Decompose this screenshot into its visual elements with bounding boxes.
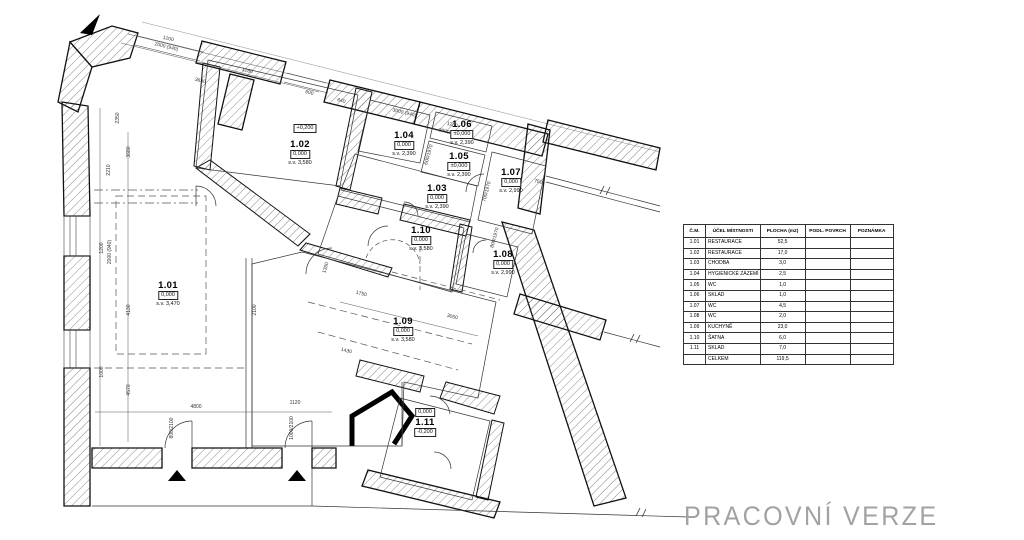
table-cell: WC — [706, 312, 761, 323]
table-cell — [805, 333, 850, 344]
drawing-sheet: 12002000 (940)363012806006403000 (940)12… — [0, 0, 1024, 540]
table-row: 1.11SKLAD7,0 — [684, 343, 894, 354]
plan-geometry — [546, 182, 660, 212]
table-cell: 23,0 — [760, 322, 805, 333]
table-row: 1.05WC1,0 — [684, 280, 894, 291]
table-cell — [850, 248, 893, 259]
plan-geometry — [64, 256, 90, 330]
dimension-label: 1750 — [355, 290, 367, 299]
plan-geometry — [318, 332, 458, 370]
plan-geometry — [64, 216, 90, 256]
dimension-label: 4800 — [190, 404, 201, 410]
table-cell: KUCHYNĚ — [706, 322, 761, 333]
table-cell: 52,5 — [760, 238, 805, 249]
dimension-label: 3680 — [126, 146, 132, 157]
dimension-label: 1000/2100 — [289, 416, 295, 440]
plan-geometry — [476, 420, 504, 500]
dimension-label: 1350 — [322, 261, 331, 274]
plan-geometry — [196, 160, 310, 246]
plan-geometry — [546, 176, 660, 206]
column-header: Č.M. — [684, 225, 706, 238]
table-cell: 1.04 — [684, 269, 706, 280]
table-cell — [805, 248, 850, 259]
table-cell: WC — [706, 301, 761, 312]
table-cell — [805, 322, 850, 333]
dimension-label: 2000 (940) — [107, 240, 113, 265]
plan-geometry — [366, 240, 420, 264]
plan-geometry — [543, 120, 660, 170]
table-cell: 1.05 — [684, 280, 706, 291]
column-header: ÚČEL MÍSTNOSTI — [706, 225, 761, 238]
room-schedule-table: Č.M.ÚČEL MÍSTNOSTIPLOCHA (m2)PODL. POVRC… — [683, 224, 894, 365]
plan-geometry — [502, 222, 626, 506]
plan-geometry — [64, 368, 90, 506]
table-cell — [805, 269, 850, 280]
table-cell: 119,5 — [760, 354, 805, 365]
dimension-label: 600/1970 — [423, 144, 434, 166]
plan-geometry — [92, 448, 162, 468]
dimension-label: 600 — [304, 89, 314, 97]
dimension-label: 3050 — [446, 313, 458, 322]
plan-geometry — [62, 102, 90, 216]
plan-geometry — [473, 240, 486, 253]
plan-geometry — [218, 74, 254, 130]
table-row: 1.08WC2,0 — [684, 312, 894, 323]
table-row: 1.09KUCHYNĚ23,0 — [684, 322, 894, 333]
table-cell: SKLAD — [706, 343, 761, 354]
plan-geometry — [368, 226, 388, 246]
dimension-label: 800/1970 — [489, 227, 500, 249]
dimension-label: 1200 — [162, 35, 174, 44]
plan-geometry — [116, 196, 206, 354]
table-cell: 4,5 — [760, 301, 805, 312]
table-row: 1.07WC4,5 — [684, 301, 894, 312]
table-cell — [850, 269, 893, 280]
dimension-label: 1430 — [340, 347, 352, 356]
table-body: 1.01RESTAURACE52,51.02RESTAURACE17,01.03… — [684, 238, 894, 365]
table-cell: 3,0 — [760, 259, 805, 270]
dimension-label: 800/2100 — [169, 417, 175, 438]
table-header-row: Č.M.ÚČEL MÍSTNOSTIPLOCHA (m2)PODL. POVRC… — [684, 225, 894, 238]
dimension-label: 2100 — [252, 304, 258, 315]
status-text: PRACOVNÍ VERZE — [684, 501, 938, 532]
table-cell: 1.08 — [684, 312, 706, 323]
table-cell: 1.10 — [684, 333, 706, 344]
plan-geometry — [604, 332, 660, 347]
table-cell: ŠATNA — [706, 333, 761, 344]
plan-geometry — [64, 330, 90, 368]
table-cell: 7,0 — [760, 343, 805, 354]
dimension-label: 1200 — [99, 242, 105, 253]
dimension-label: 1000 — [99, 366, 105, 377]
table-cell: CELKEM — [706, 354, 761, 365]
table-cell — [805, 290, 850, 301]
table-cell: 1,0 — [760, 290, 805, 301]
table-cell: 1.09 — [684, 322, 706, 333]
table-row: 1.10ŠATNA6,0 — [684, 333, 894, 344]
table-cell: 2,0 — [760, 312, 805, 323]
table-cell: RESTAURACE — [706, 238, 761, 249]
table-cell — [850, 290, 893, 301]
plan-geometry — [312, 506, 688, 517]
table-header: Č.M.ÚČEL MÍSTNOSTIPLOCHA (m2)PODL. POVRC… — [684, 225, 894, 238]
level-box: +0,200 — [294, 124, 317, 133]
table-cell: HYGIENICKÉ ZÁZEMÍ — [706, 269, 761, 280]
table-cell: 1.03 — [684, 259, 706, 270]
table-cell — [805, 354, 850, 365]
table-cell — [850, 259, 893, 270]
dimension-label: 1120 — [290, 400, 301, 406]
dimension-label: 2350 — [115, 112, 121, 123]
plan-geometry — [434, 452, 451, 469]
table-cell: WC — [706, 280, 761, 291]
table-cell: RESTAURACE — [706, 248, 761, 259]
table-cell — [850, 354, 893, 365]
dimension-label: 4130 — [126, 304, 132, 315]
dimension-labels: 12002000 (940)363012806006403000 (940)12… — [99, 35, 543, 440]
plan-geometry — [318, 196, 464, 292]
table-cell — [850, 322, 893, 333]
plan-geometry — [466, 174, 484, 192]
dimension-label: 3630 — [194, 77, 206, 86]
table-cell — [850, 312, 893, 323]
table-row: 1.04HYGIENICKÉ ZÁZEMÍ2,5 — [684, 269, 894, 280]
table-row: 1.06SKLAD1,0 — [684, 290, 894, 301]
entrance-arrow-icon — [288, 470, 306, 481]
table-cell: 17,0 — [760, 248, 805, 259]
plan-geometry — [356, 360, 424, 392]
entrance-arrow-icon — [168, 470, 186, 481]
table-cell — [684, 354, 706, 365]
table-cell: 1,0 — [760, 280, 805, 291]
plan-geometry — [312, 448, 336, 468]
table-cell — [805, 301, 850, 312]
table-cell — [850, 333, 893, 344]
table-cell: CHODBA — [706, 259, 761, 270]
plan-geometry — [392, 272, 500, 300]
plan-geometry — [308, 302, 472, 344]
floor-plan: 12002000 (940)363012806006403000 (940)12… — [0, 0, 720, 540]
column-header: PLOCHA (m2) — [760, 225, 805, 238]
plan-geometry — [192, 448, 282, 468]
table-cell — [850, 301, 893, 312]
table-cell: 2,5 — [760, 269, 805, 280]
table-cell: 6,0 — [760, 333, 805, 344]
table-cell — [850, 280, 893, 291]
table-cell — [805, 312, 850, 323]
window-lines — [64, 36, 331, 368]
table-cell: 1.02 — [684, 248, 706, 259]
table-cell — [805, 238, 850, 249]
table-cell: 1.06 — [684, 290, 706, 301]
table-cell: 1.01 — [684, 238, 706, 249]
table-cell — [805, 343, 850, 354]
table-cell — [805, 259, 850, 270]
table-row: 1.03CHODBA3,0 — [684, 259, 894, 270]
table-cell — [805, 280, 850, 291]
dimension-label: 700/1970 — [481, 181, 492, 203]
table-cell: 1.07 — [684, 301, 706, 312]
table-row: 1.01RESTAURACE52,5 — [684, 238, 894, 249]
break-mark — [630, 334, 640, 343]
table-cell: 1.11 — [684, 343, 706, 354]
table-cell — [850, 238, 893, 249]
break-mark — [600, 186, 610, 195]
table-cell — [850, 343, 893, 354]
column-header: POZNÁMKA — [850, 225, 893, 238]
column-header: PODL. POVRCH — [805, 225, 850, 238]
dimension-label: 4570 — [126, 384, 132, 395]
table-cell: SKLAD — [706, 290, 761, 301]
table-row: CELKEM119,5 — [684, 354, 894, 365]
dimension-label: 2210 — [106, 164, 112, 175]
table-row: 1.02RESTAURACE17,0 — [684, 248, 894, 259]
